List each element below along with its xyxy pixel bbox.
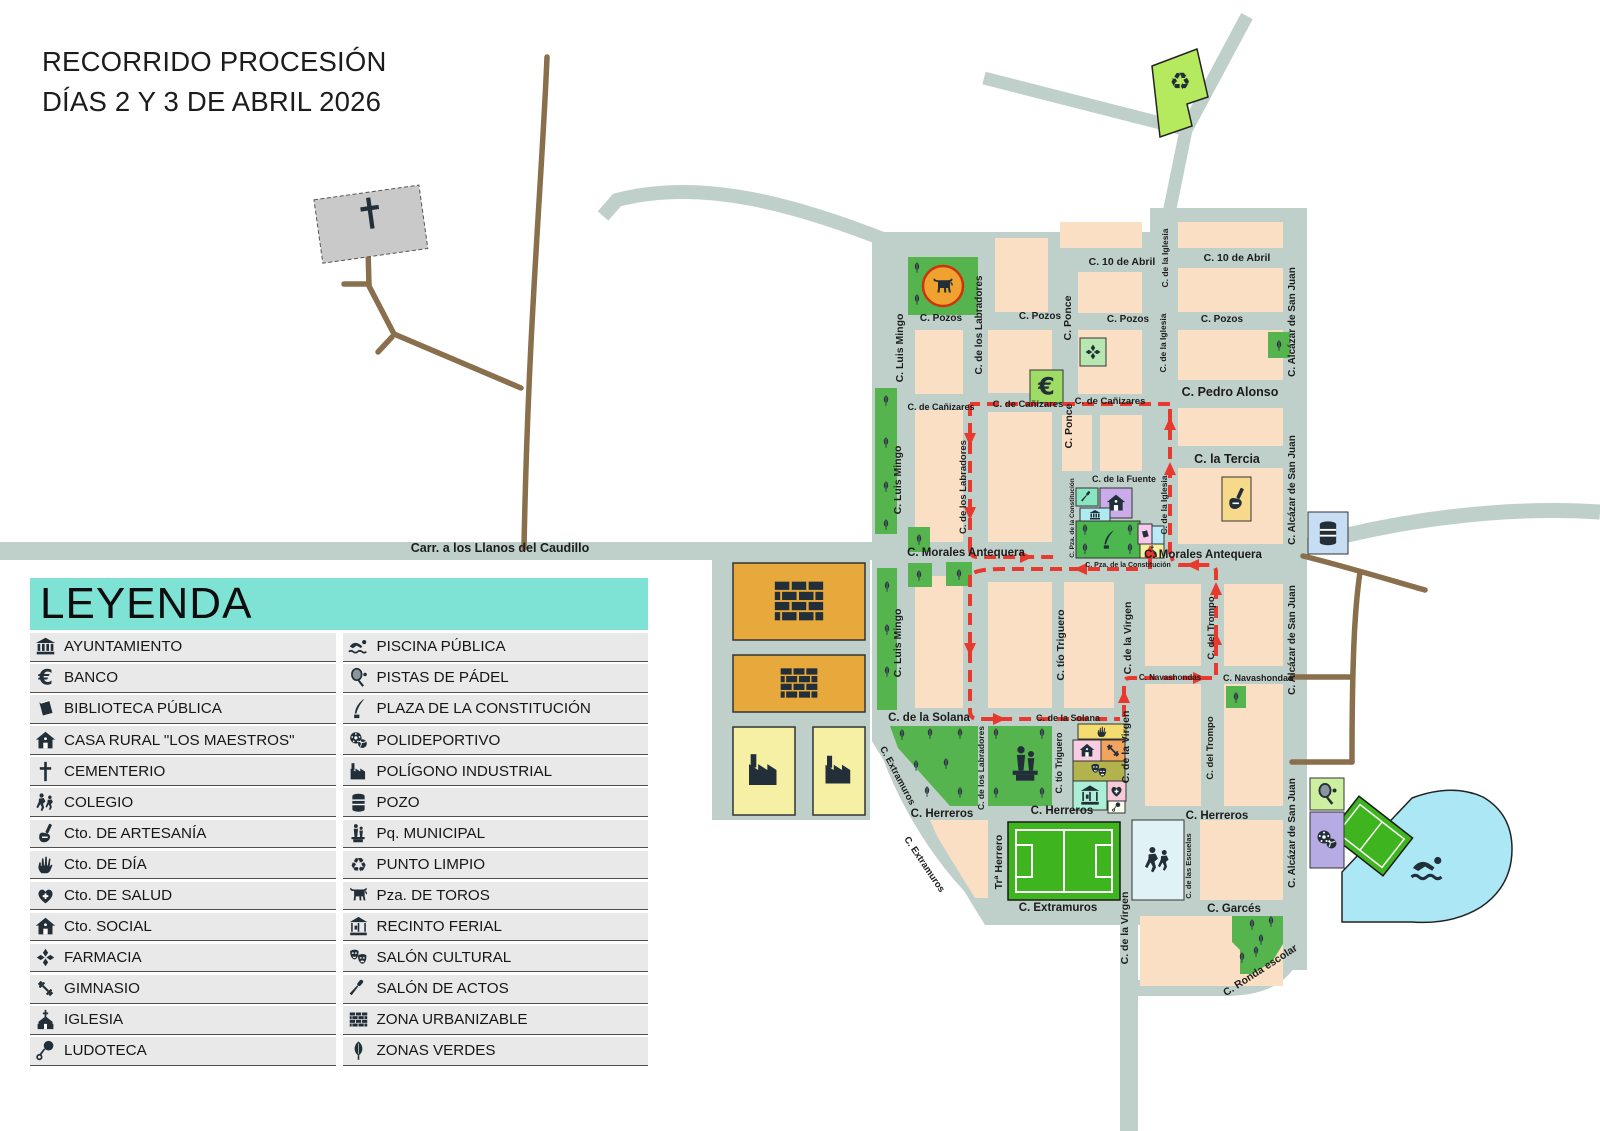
gym-icon <box>35 978 56 999</box>
street-label: C. Navashondas <box>1139 673 1202 682</box>
city-block <box>1178 330 1283 380</box>
balls-icon <box>348 730 369 751</box>
legend-item-biblioteca-publica: BIBLIOTECA PÚBLICA <box>30 695 336 724</box>
quill-icon <box>348 698 369 719</box>
bank-icon <box>35 636 56 657</box>
street-label: Carr. a los Llanos del Caudillo <box>411 541 590 555</box>
legend-label: PISTAS DE PÁDEL <box>377 669 509 686</box>
legend-label: GIMNASIO <box>64 980 140 997</box>
legend-item-farmacia: FARMACIA <box>30 944 336 973</box>
city-block <box>995 238 1048 312</box>
legend: LEYENDA AYUNTAMIENTOBANCOBIBLIOTECA PÚBL… <box>30 578 648 1068</box>
house-icon <box>35 730 56 751</box>
street-label: C. Pozos <box>1107 314 1150 325</box>
legend-label: Pza. DE TOROS <box>377 887 490 904</box>
street-label: C. de la Virgen <box>1122 602 1134 675</box>
church-icon <box>35 1009 56 1030</box>
legend-label: PLAZA DE LA CONSTITUCIÓN <box>377 700 591 717</box>
legend-item-plaza-de-la-constitucion: PLAZA DE LA CONSTITUCIÓN <box>343 695 649 724</box>
house-icon <box>35 916 56 937</box>
city-block <box>1145 684 1201 806</box>
poi-cto-de-artesania <box>1222 477 1251 521</box>
street-label: C. de las Escuelas <box>1184 833 1193 898</box>
street-label: C. 10 de Abril <box>1204 252 1271 264</box>
cementerio-building <box>314 185 428 263</box>
heart-icon <box>35 885 56 906</box>
poi-salon-cultural <box>1073 761 1125 781</box>
maltese-icon <box>35 947 56 968</box>
street-label: C. de la Solana <box>1036 713 1101 723</box>
legend-item-cto-de-salud: Cto. DE SALUD <box>30 882 336 911</box>
well-icon <box>1320 521 1336 545</box>
legend-label: BANCO <box>64 669 118 686</box>
statue-icon <box>348 823 369 844</box>
legend-label: Cto. SOCIAL <box>64 918 152 935</box>
street-label: C. Alcázar de San Juan <box>1287 435 1298 545</box>
street-label: C. del Trompo <box>1206 596 1217 660</box>
city-block <box>1145 584 1201 666</box>
recycle-icon <box>348 854 369 875</box>
legend-label: COLEGIO <box>64 794 133 811</box>
football-field <box>1008 822 1120 900</box>
city-block <box>1178 408 1283 446</box>
legend-label: Cto. DE DÍA <box>64 856 147 873</box>
city-block <box>915 576 963 708</box>
street-label: C. Morales Antequera <box>907 547 1025 559</box>
street-label: C. de la Iglesia <box>1159 475 1169 534</box>
street-label: C. de la Virgen <box>1119 892 1131 965</box>
poi-pistas-de-padel <box>1310 778 1344 810</box>
poi-ayuntamiento <box>1080 508 1110 522</box>
swimmer-icon <box>348 636 369 657</box>
legend-item-piscina-publica: PISCINA PÚBLICA <box>343 633 649 662</box>
street-label: C. 10 de Abril <box>1089 256 1156 268</box>
street-label: C. Pozos <box>1019 311 1062 322</box>
factory-icon <box>348 761 369 782</box>
legend-item-iglesia: IGLESIA <box>30 1006 336 1035</box>
legend-item-pistas-de-padel: PISTAS DE PÁDEL <box>343 664 649 693</box>
poi-salon-de-actos <box>1076 488 1098 506</box>
street-label: C. Ponce <box>1062 295 1074 340</box>
legend-label: ZONA URBANIZABLE <box>377 1011 528 1028</box>
legend-label: PUNTO LIMPIO <box>377 856 486 873</box>
legend-label: Cto. DE SALUD <box>64 887 172 904</box>
legend-label: SALÓN DE ACTOS <box>377 980 509 997</box>
legend-label: FARMACIA <box>64 949 142 966</box>
legend-label: IGLESIA <box>64 1011 123 1028</box>
street-label: C. Herreros <box>1186 810 1249 822</box>
legend-item-ayuntamiento: AYUNTAMIENTO <box>30 633 336 662</box>
street-label: C. Luis Mingo <box>892 446 904 515</box>
euro-icon <box>1037 373 1055 401</box>
legend-item-pozo: POZO <box>343 788 649 817</box>
carousel-icon <box>348 916 369 937</box>
legend-item-salon-de-actos: SALÓN DE ACTOS <box>343 975 649 1004</box>
poi-colegio <box>1132 820 1184 900</box>
street-label: C. Ponce <box>1063 403 1075 448</box>
street-label: C. Herreros <box>1031 805 1094 817</box>
legend-item-zona-urbanizable: ZONA URBANIZABLE <box>343 1006 649 1035</box>
legend-label: AYUNTAMIENTO <box>64 638 182 655</box>
legend-item-cementerio: CEMENTERIO <box>30 757 336 786</box>
legend-label: BIBLIOTECA PÚBLICA <box>64 700 222 717</box>
street-label: C. tío Triguero <box>1054 732 1064 794</box>
street-label: C. Luis Mingo <box>894 314 906 383</box>
street-label: Trª Herrero <box>993 835 1005 890</box>
legend-label: POLIDEPORTIVO <box>377 732 501 749</box>
legend-item-zonas-verdes: ZONAS VERDES <box>343 1037 649 1066</box>
city-block <box>1064 582 1114 708</box>
city-block <box>988 412 1052 542</box>
street-label: C. Pza. de la Constitución <box>1085 562 1171 569</box>
legend-item-casa-rural-los-maestros: CASA RURAL "LOS MAESTROS" <box>30 726 336 755</box>
street-label: C. de la Solana <box>888 712 970 724</box>
legend-item-polideportivo: POLIDEPORTIVO <box>343 726 649 755</box>
street-label: C. de los Labradores <box>976 726 986 810</box>
street-label: C. de Cañizares <box>1075 396 1146 407</box>
city-block <box>1224 584 1283 666</box>
cross-icon <box>35 761 56 782</box>
city-block <box>915 410 963 542</box>
racket-icon <box>348 667 369 688</box>
street-label: C. Pozos <box>920 313 963 324</box>
zona-urbanizable <box>733 563 865 712</box>
poi-cto-de-dia <box>1078 724 1126 739</box>
legend-label: CASA RURAL "LOS MAESTROS" <box>64 732 295 749</box>
street-label: C. Garcés <box>1207 903 1261 915</box>
street-label: C. de los Labradores <box>958 440 969 534</box>
city-block <box>1100 415 1142 471</box>
legend-item-poligono-industrial: POLÍGONO INDUSTRIAL <box>343 757 649 786</box>
legend-item-pza-de-toros: Pza. DE TOROS <box>343 882 649 911</box>
city-block <box>1178 222 1283 248</box>
legend-item-cto-social: Cto. SOCIAL <box>30 913 336 942</box>
legend-item-colegio: COLEGIO <box>30 788 336 817</box>
legend-label: LUDOTECA <box>64 1042 147 1059</box>
poi-pozo <box>1308 512 1348 554</box>
street-label: C. Extramuros <box>1019 902 1098 914</box>
legend-item-salon-cultural: SALÓN CULTURAL <box>343 944 649 973</box>
street-label: C. de la Iglesia <box>1158 313 1168 372</box>
street-label: C. Navashondas <box>1223 673 1293 683</box>
hand-icon <box>35 854 56 875</box>
legend-item-recinto-ferial: RECINTO FERIAL <box>343 913 649 942</box>
city-block <box>988 582 1052 708</box>
recycle-icon <box>1169 68 1190 96</box>
street-label: C. de Cañizares <box>993 399 1064 410</box>
street-label: C. tío Triguero <box>1055 609 1067 680</box>
legend-item-gimnasio: GIMNASIO <box>30 975 336 1004</box>
legend-item-cto-de-artesania: Cto. DE ARTESANÍA <box>30 820 336 849</box>
legend-label: SALÓN CULTURAL <box>377 949 512 966</box>
street-label: C. Alcázar de San Juan <box>1287 585 1298 695</box>
street-label: C. Luis Mingo <box>892 609 904 678</box>
legend-label: Pq. MUNICIPAL <box>377 825 486 842</box>
street-label: C. de los Labradores <box>974 275 985 374</box>
street-label: C. de la Iglesia <box>1160 228 1170 287</box>
road-northwest <box>603 192 903 247</box>
street-label: C. del Trompo <box>1205 716 1216 780</box>
city-block <box>1200 820 1283 900</box>
legend-label: PISCINA PÚBLICA <box>377 638 506 655</box>
poi-biblioteca-publica <box>1138 524 1152 544</box>
street-label: C. Pza. de la Constitución <box>1069 478 1076 557</box>
street-label: C. de la Fuente <box>1092 474 1156 484</box>
kids-icon <box>35 792 56 813</box>
legend-label: Cto. DE ARTESANÍA <box>64 825 206 842</box>
legend-label: POLÍGONO INDUSTRIAL <box>377 763 553 780</box>
bricks-icon <box>348 1009 369 1030</box>
legend-header: LEYENDA <box>30 578 648 630</box>
street-label: C. Pozos <box>1201 314 1244 325</box>
street-label: C. de la Virgen <box>1120 711 1132 784</box>
street-label: C. de Cañizares <box>907 402 974 412</box>
legend-column-left: AYUNTAMIENTOBANCOBIBLIOTECA PÚBLICACASA … <box>30 633 336 1068</box>
legend-item-pq-municipal: Pq. MUNICIPAL <box>343 820 649 849</box>
well-icon <box>348 792 369 813</box>
city-block <box>915 330 963 394</box>
legend-item-punto-limpio: PUNTO LIMPIO <box>343 851 649 880</box>
legend-label: ZONAS VERDES <box>377 1042 496 1059</box>
poi-polideportivo <box>1310 812 1344 868</box>
legend-label: CEMENTERIO <box>64 763 165 780</box>
street-label: C. Alcázar de San Juan <box>1287 778 1298 888</box>
legend-item-cto-de-dia: Cto. DE DÍA <box>30 851 336 880</box>
legend-column-right: PISCINA PÚBLICAPISTAS DE PÁDELPLAZA DE L… <box>343 633 649 1068</box>
screenshot: RECORRIDO PROCESIÓN DÍAS 2 Y 3 DE ABRIL … <box>0 0 1600 1131</box>
rattle-icon <box>35 1040 56 1061</box>
street-label: C. la Tercia <box>1194 452 1261 466</box>
book-icon <box>35 698 56 719</box>
bull-icon <box>348 885 369 906</box>
street-label: C. Herreros <box>911 808 974 820</box>
street-label: C. Pedro Alonso <box>1182 385 1279 399</box>
poi-farmacia <box>1080 338 1106 366</box>
craft-icon <box>35 823 56 844</box>
tree-icon <box>348 1040 369 1061</box>
city-block <box>1060 222 1142 248</box>
legend-label: RECINTO FERIAL <box>377 918 502 935</box>
street-label: C. Morales Antequera <box>1144 549 1262 561</box>
poi-cto-social <box>1073 740 1101 761</box>
euro-icon <box>35 667 56 688</box>
punto-limpio-building <box>1152 49 1208 137</box>
street-label: C. Alcázar de San Juan <box>1287 267 1298 377</box>
city-block <box>1178 268 1283 312</box>
legend-item-banco: BANCO <box>30 664 336 693</box>
poi-ludoteca <box>1108 801 1125 813</box>
city-block <box>1078 272 1142 313</box>
legend-item-ludoteca: LUDOTECA <box>30 1037 336 1066</box>
masks-icon <box>348 947 369 968</box>
legend-label: POZO <box>377 794 420 811</box>
mic-icon <box>348 978 369 999</box>
